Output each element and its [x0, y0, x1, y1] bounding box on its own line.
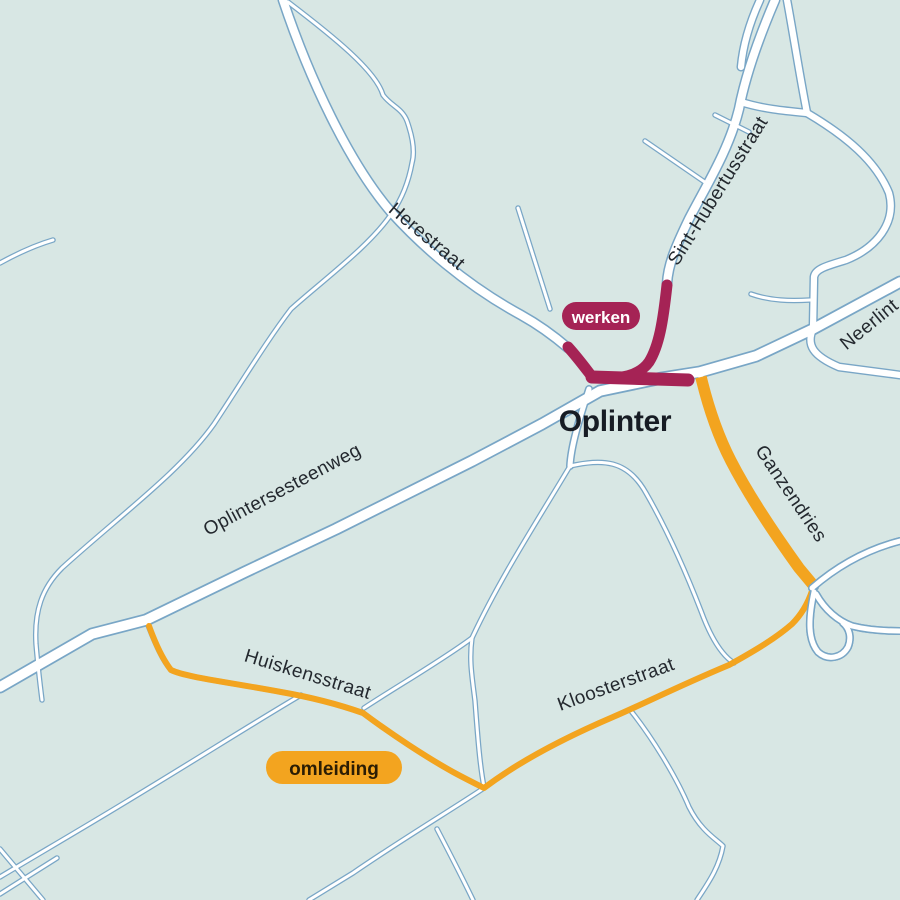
street-label-sint-hubertusstraat: Sint-Hubertusstraat	[664, 113, 773, 270]
detour-route-ganzendries	[701, 377, 814, 586]
street-label-kloosterstraat: Kloosterstraat	[555, 654, 678, 716]
map-canvas: Herestraat Sint-Hubertusstraat Neerlint …	[0, 0, 900, 900]
works-route	[568, 285, 688, 380]
street-label-ganzendries: Ganzendries	[751, 442, 831, 547]
street-label-herestraat: Herestraat	[384, 199, 469, 275]
roadworks-detour-map: Herestraat Sint-Hubertusstraat Neerlint …	[0, 0, 900, 900]
omleiding-badge: omleiding	[266, 751, 402, 784]
place-label-oplinter: Oplinter	[559, 405, 672, 438]
works-route-main	[592, 377, 688, 380]
omleiding-badge-label: omleiding	[289, 759, 379, 780]
works-route-west-arm	[568, 347, 593, 378]
works-route-north-arm	[614, 285, 667, 378]
werken-badge: werken	[562, 302, 640, 330]
werken-badge-label: werken	[571, 308, 631, 327]
